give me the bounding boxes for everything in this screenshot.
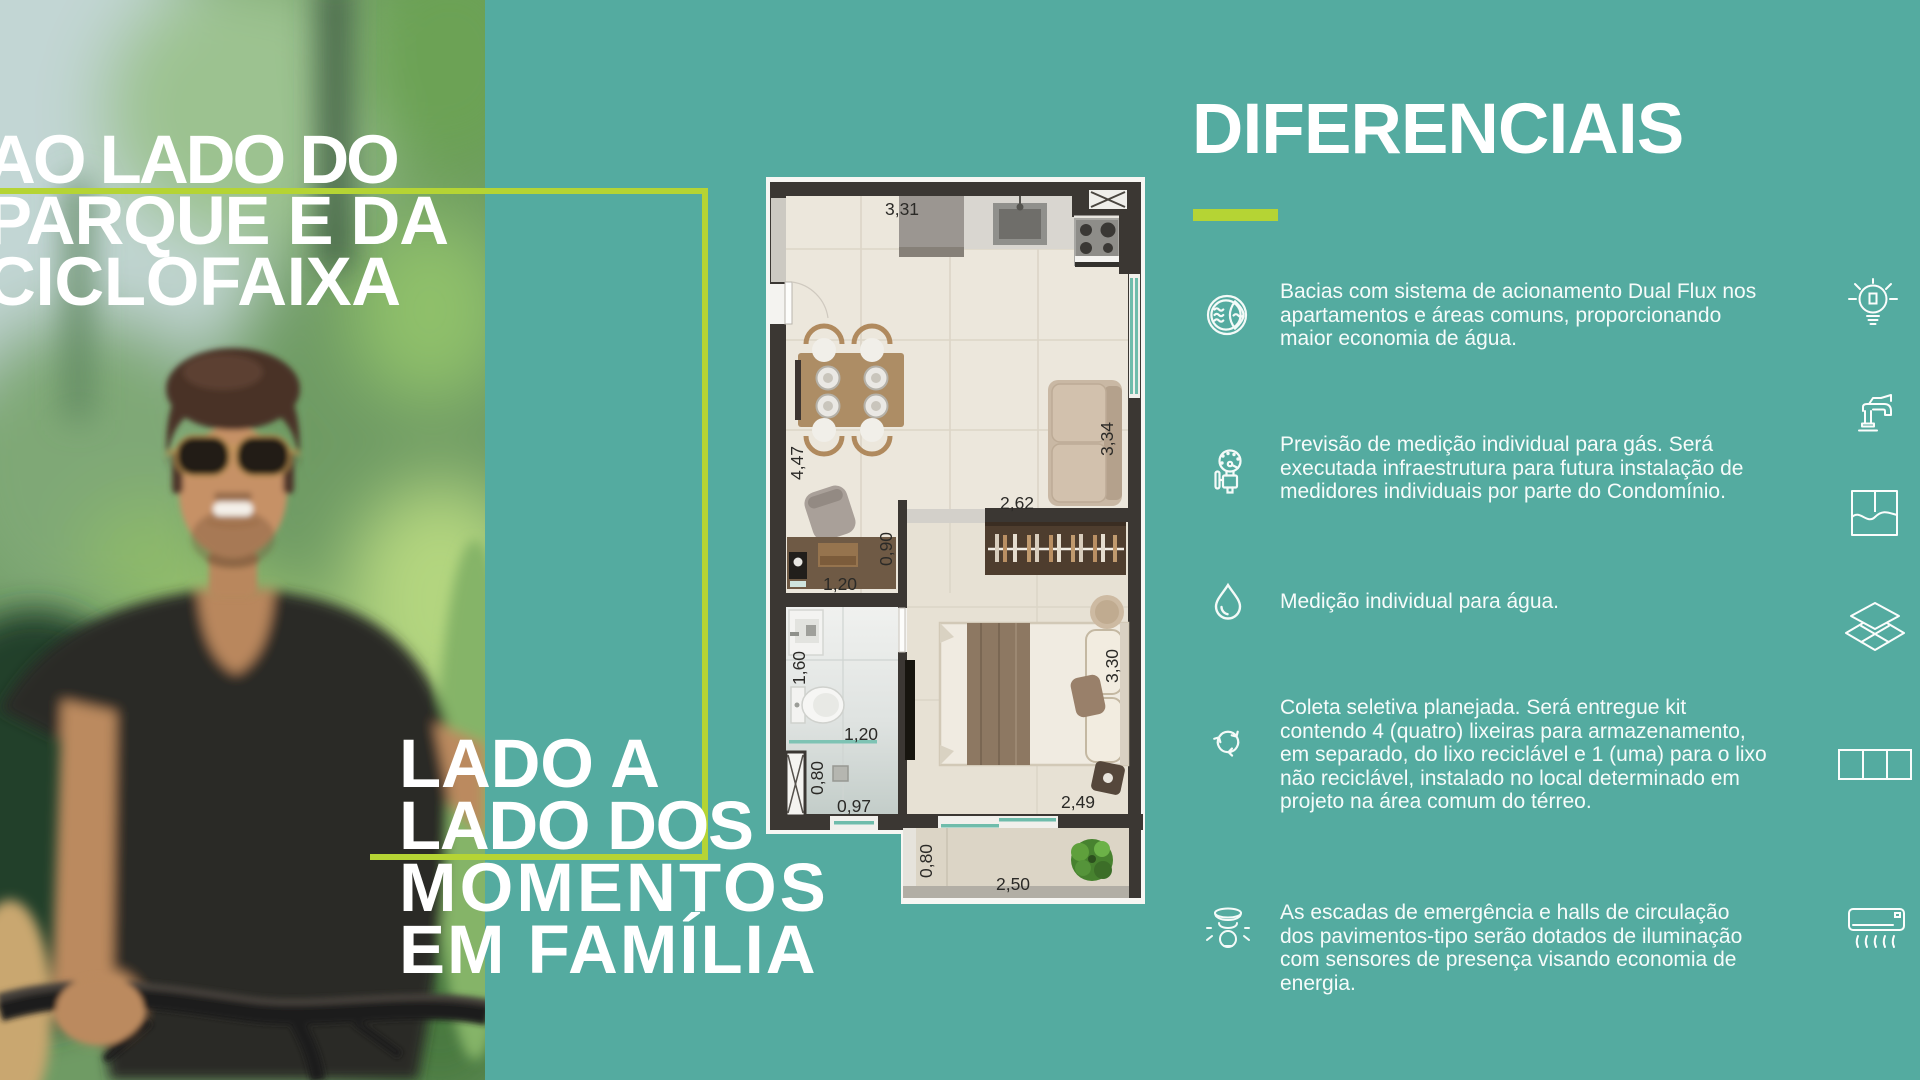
svg-text:1,20: 1,20: [823, 574, 857, 594]
svg-text:0,90: 0,90: [876, 532, 896, 566]
svg-text:2,62: 2,62: [1000, 493, 1034, 513]
svg-text:3,31: 3,31: [885, 199, 919, 219]
svg-text:4,47: 4,47: [787, 446, 807, 480]
svg-text:2,49: 2,49: [1061, 792, 1095, 812]
svg-text:0,97: 0,97: [837, 796, 871, 816]
svg-text:2,50: 2,50: [996, 874, 1030, 894]
svg-text:0,80: 0,80: [916, 844, 936, 878]
svg-text:0,80: 0,80: [807, 761, 827, 795]
svg-text:1,60: 1,60: [789, 651, 809, 685]
svg-text:3,34: 3,34: [1097, 422, 1117, 456]
svg-text:1,20: 1,20: [844, 724, 878, 744]
svg-text:3,30: 3,30: [1102, 649, 1122, 683]
